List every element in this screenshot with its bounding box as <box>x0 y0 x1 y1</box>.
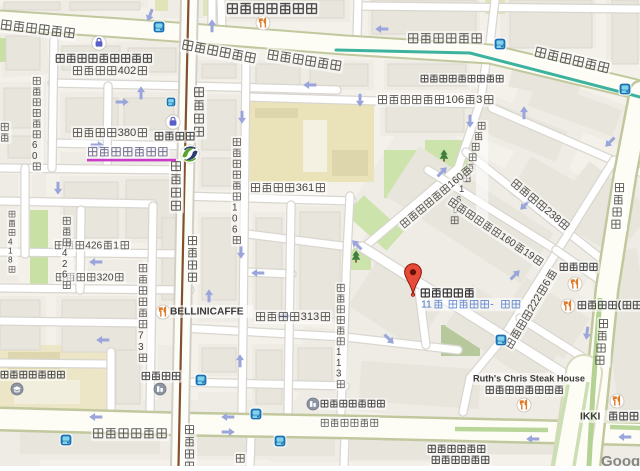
svg-text:313: 313 <box>301 311 320 323</box>
svg-text:3: 3 <box>336 369 341 380</box>
svg-text:1: 1 <box>232 203 238 214</box>
svg-text:402: 402 <box>118 65 137 77</box>
svg-text:0: 0 <box>232 213 238 224</box>
svg-text:0: 0 <box>32 151 38 162</box>
svg-text:11: 11 <box>421 300 432 311</box>
svg-text:6: 6 <box>62 270 67 281</box>
svg-text:3: 3 <box>476 94 482 106</box>
svg-text:7: 7 <box>138 331 144 342</box>
svg-text:426: 426 <box>85 240 102 251</box>
svg-text:1: 1 <box>113 240 119 251</box>
svg-text:6: 6 <box>232 224 238 235</box>
svg-text:380: 380 <box>118 127 137 139</box>
svg-text:2: 2 <box>62 259 67 270</box>
svg-text:IKKI: IKKI <box>580 411 601 422</box>
svg-text:8: 8 <box>8 256 13 265</box>
svg-text:106: 106 <box>445 94 464 106</box>
svg-text:361: 361 <box>296 182 315 194</box>
svg-text:4: 4 <box>8 237 13 246</box>
svg-text:3: 3 <box>138 342 144 353</box>
svg-text:6: 6 <box>32 140 37 151</box>
svg-text:1: 1 <box>336 347 341 358</box>
svg-text:320: 320 <box>97 272 114 283</box>
svg-text:Ruth's Chris Steak House: Ruth's Chris Steak House <box>473 374 585 384</box>
svg-text:1: 1 <box>8 247 13 256</box>
svg-text:4: 4 <box>62 248 68 259</box>
svg-text:1: 1 <box>336 358 341 369</box>
svg-text:-: - <box>490 300 493 311</box>
svg-text:BELLINICAFFE: BELLINICAFFE <box>170 306 244 317</box>
svg-text:Goog: Goog <box>601 453 640 466</box>
